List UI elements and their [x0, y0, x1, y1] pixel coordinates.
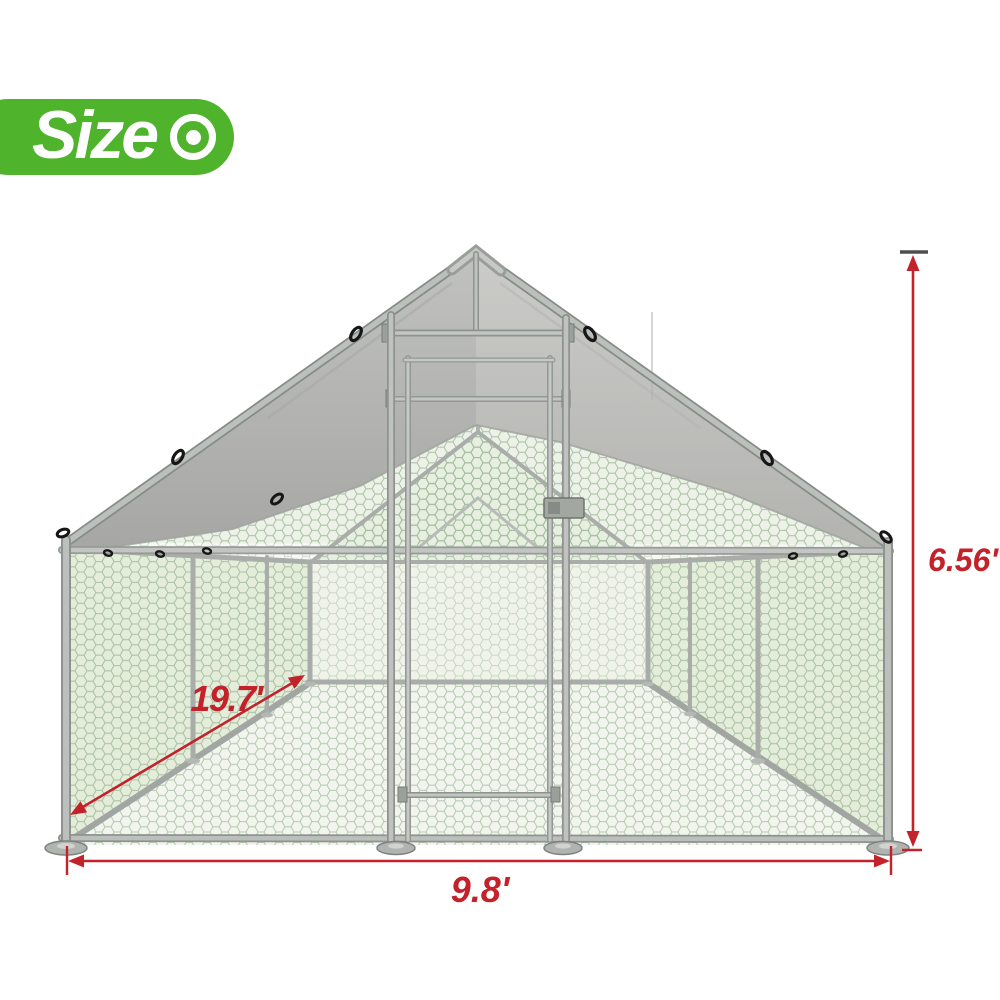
product-size-screenshot: 6.56' 9.8' 19.7' Size: [0, 0, 1000, 1000]
depth-label: 19.7': [190, 678, 264, 719]
height-label: 6.56': [928, 542, 999, 578]
dimension-width: 9.8': [67, 846, 891, 910]
target-icon: [170, 114, 216, 160]
door-latch: [544, 498, 584, 518]
size-badge-label: Size: [32, 101, 156, 169]
size-badge: Size: [0, 99, 234, 175]
width-label: 9.8': [451, 869, 511, 910]
dimension-height: 6.56': [900, 252, 999, 850]
